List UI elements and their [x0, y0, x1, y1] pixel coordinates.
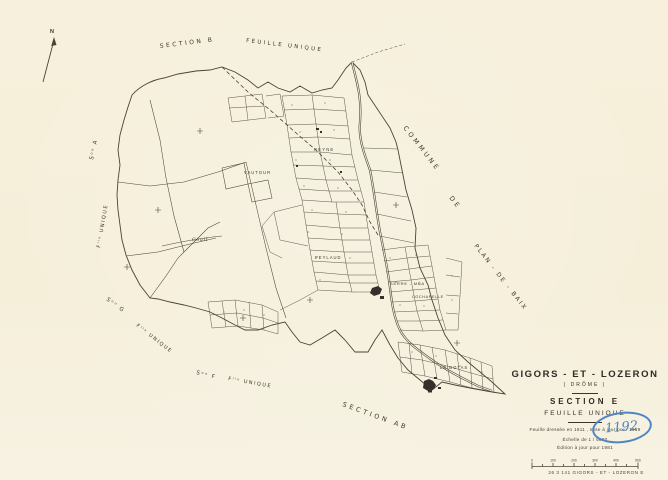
place-label-cocharelle: COCHARELLE: [412, 295, 444, 299]
edge-label-feuille-unique-top: FEUILLE UNIQUE: [246, 38, 324, 53]
sheet-reference: 26 3 141 GIGORS - ET - LOZERON E: [548, 470, 644, 475]
dashed-limit-line: [222, 44, 405, 235]
edge-label-de: DE: [447, 194, 463, 211]
edge-label-commune: COMMUNE: [401, 124, 442, 173]
edge-label-section-g: Sᵒⁿ G: [105, 297, 126, 314]
place-label-serre-mea: SERRE - MÉA: [390, 281, 425, 286]
scale-bar: 0 100 200 300 400 500: [529, 457, 641, 471]
compass-n-label: N: [50, 29, 54, 35]
scale-tick-3: 300: [592, 459, 598, 463]
edge-label-section-ab: SECTION AB: [341, 400, 409, 431]
section-label: SECTION E: [506, 398, 664, 407]
place-label-reyne: REYNE: [314, 147, 334, 152]
survey-crosses: [124, 128, 460, 346]
edge-label-feuille-g: Fˡˡᵉ UNIQUE: [135, 323, 174, 355]
edge-label-section-a: Sᵒⁿ A: [89, 139, 99, 161]
scale-tick-0: 0: [531, 459, 533, 463]
note-edition: Édition à jour pour 1981: [506, 445, 664, 450]
scale-tick-4: 400: [613, 459, 619, 463]
cadastral-sheet: N: [0, 0, 668, 480]
place-label-vautour: VAUTOUR: [244, 170, 271, 175]
north-arrow-icon: N: [43, 29, 57, 82]
scale-tick-1: 100: [550, 459, 556, 463]
place-label-le-botas: LE BOTAS: [440, 365, 468, 370]
parcels-road-sliver: [364, 148, 414, 243]
edge-label-section-f: Sᵒⁿ F: [196, 370, 217, 381]
departement-label: ( DRÔME ): [506, 383, 664, 389]
blue-number-text: 1192: [605, 419, 639, 437]
scale-tick-2: 200: [571, 459, 577, 463]
edge-label-section-b: SECTION B: [159, 36, 214, 50]
western-field-lines: [118, 100, 286, 318]
scale-tick-5: 500: [635, 459, 641, 463]
commune-title: GIGORS - ET - LOZERON: [506, 370, 664, 380]
place-label-coult: Coult: [192, 237, 209, 243]
section-boundary: [117, 62, 505, 394]
edge-label-plan-de-baix: PLAN - DE - BAIX: [472, 243, 528, 312]
place-label-peylaud: PEYLAUD: [315, 255, 342, 260]
edge-label-feuille-f: Fˡˡᵉ UNIQUE: [228, 376, 273, 390]
title-divider: [572, 393, 598, 394]
edge-label-feuille-a: Fˡˡᵉ UNIQUE: [96, 204, 110, 249]
parcels-eastern-strip: [382, 245, 462, 331]
